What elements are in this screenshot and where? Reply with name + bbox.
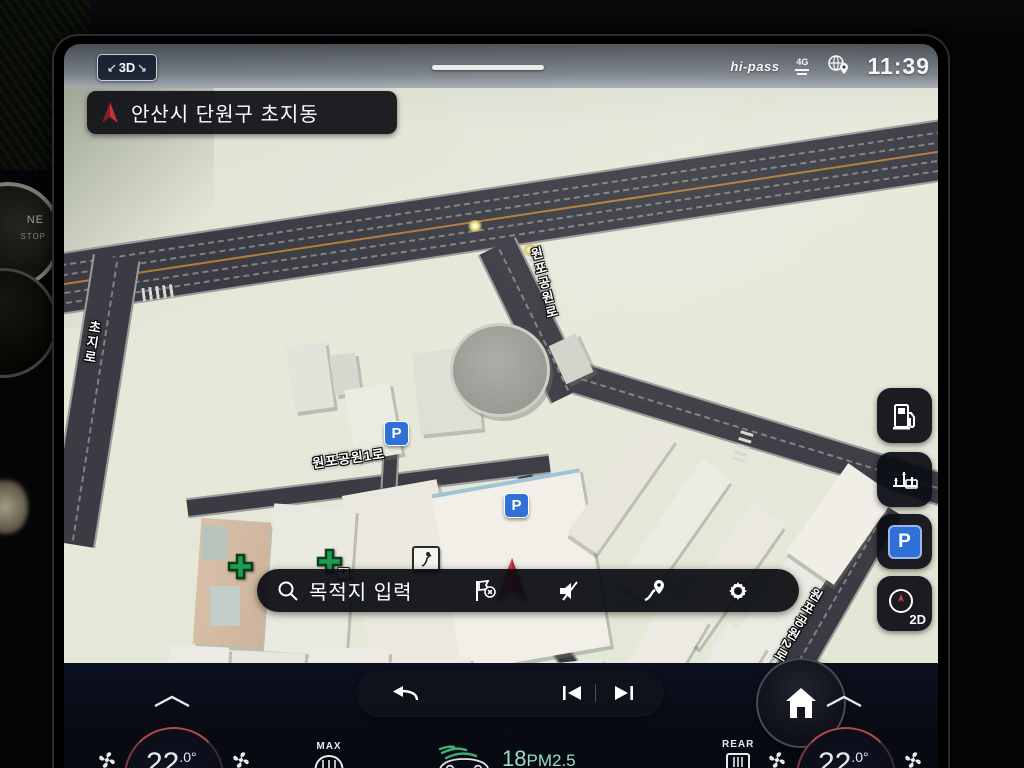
traffic-info-button[interactable] xyxy=(877,452,932,507)
home-icon xyxy=(783,686,819,720)
bottom-control-band: 22.0° MAX xyxy=(64,663,938,768)
destination-search-bar[interactable]: 목적지 입력 xyxy=(257,569,799,612)
fan-icon xyxy=(902,749,924,768)
fan-icon xyxy=(96,749,118,768)
road-label-wonpo-1ro: 원포공원1로 xyxy=(311,443,386,472)
dome-building xyxy=(450,323,550,417)
clock: 11:39 xyxy=(867,53,930,80)
building xyxy=(210,586,240,626)
interior-highlight xyxy=(0,478,28,536)
pm25-value: 18PM2.5 xyxy=(502,746,576,768)
rear-defrost-button[interactable]: REAR xyxy=(722,739,754,768)
right-temp-value: 22.0° xyxy=(818,747,869,768)
start-button-subtext: STOP xyxy=(20,232,46,241)
fuel-station-button[interactable] xyxy=(877,388,932,443)
rotate-tick-icon xyxy=(138,64,146,72)
windshield-defrost-icon xyxy=(312,754,346,768)
volume-knob[interactable] xyxy=(0,268,58,378)
back-button[interactable] xyxy=(386,680,426,706)
building xyxy=(307,646,390,663)
fuel-pump-icon xyxy=(891,401,919,431)
building xyxy=(167,644,230,663)
heading-arrow-icon xyxy=(101,102,119,124)
road-junction-icon xyxy=(890,466,920,494)
system-nav-bar xyxy=(356,670,664,717)
online-location-icon xyxy=(825,53,851,80)
map-view-2d-button[interactable]: 2D xyxy=(877,576,932,631)
left-temp-value: 22.0° xyxy=(146,747,197,768)
network-4g-icon: 4G xyxy=(795,58,809,75)
mute-guidance-icon[interactable] xyxy=(556,579,582,603)
hipass-indicator: hi-pass xyxy=(730,59,779,74)
parking-search-button[interactable]: P xyxy=(877,514,932,569)
rotate-tick-icon xyxy=(108,64,116,72)
car-dashboard-photo: { "status_bar": { "map_mode_3d": "3D", "… xyxy=(0,0,1024,768)
search-icon xyxy=(277,580,299,602)
infotainment-screen: hi-pass 4G 11:39 3D xyxy=(64,44,938,768)
current-location-banner[interactable]: 안산시 단원구 초지동 xyxy=(87,91,397,134)
next-track-button[interactable] xyxy=(604,680,644,706)
dashboard-trim xyxy=(0,0,1024,40)
air-purifier-car-icon xyxy=(436,745,492,768)
max-defrost-button[interactable]: MAX xyxy=(312,741,346,768)
map-3d-toggle-button[interactable]: 3D xyxy=(97,54,157,81)
search-placeholder: 목적지 입력 xyxy=(309,576,413,605)
drag-handle[interactable] xyxy=(432,65,544,70)
street-light-glow xyxy=(467,220,483,232)
status-bar: hi-pass 4G 11:39 xyxy=(64,44,938,88)
parking-marker[interactable]: P xyxy=(504,493,529,518)
display-bezel: hi-pass 4G 11:39 3D xyxy=(54,36,948,768)
cancel-route-icon[interactable] xyxy=(472,579,498,603)
location-text: 안산시 단원구 초지동 xyxy=(131,98,319,127)
air-quality-indicator[interactable]: 18PM2.5 xyxy=(436,745,576,768)
temp-up-left-chevron[interactable] xyxy=(152,694,192,708)
parking-icon: P xyxy=(888,525,922,559)
previous-track-button[interactable] xyxy=(552,680,592,706)
compass-clock-icon xyxy=(886,586,916,616)
rear-defrost-icon xyxy=(725,752,751,768)
settings-gear-icon[interactable] xyxy=(726,579,750,603)
fan-icon xyxy=(230,749,252,768)
route-icon[interactable] xyxy=(641,578,667,604)
pharmacy-marker[interactable] xyxy=(227,553,254,580)
start-button-text: NE xyxy=(27,214,44,226)
fan-icon xyxy=(766,749,788,768)
temp-up-right-chevron[interactable] xyxy=(824,694,864,708)
parking-marker[interactable]: P xyxy=(384,421,409,446)
building xyxy=(202,526,228,560)
building xyxy=(286,342,335,413)
